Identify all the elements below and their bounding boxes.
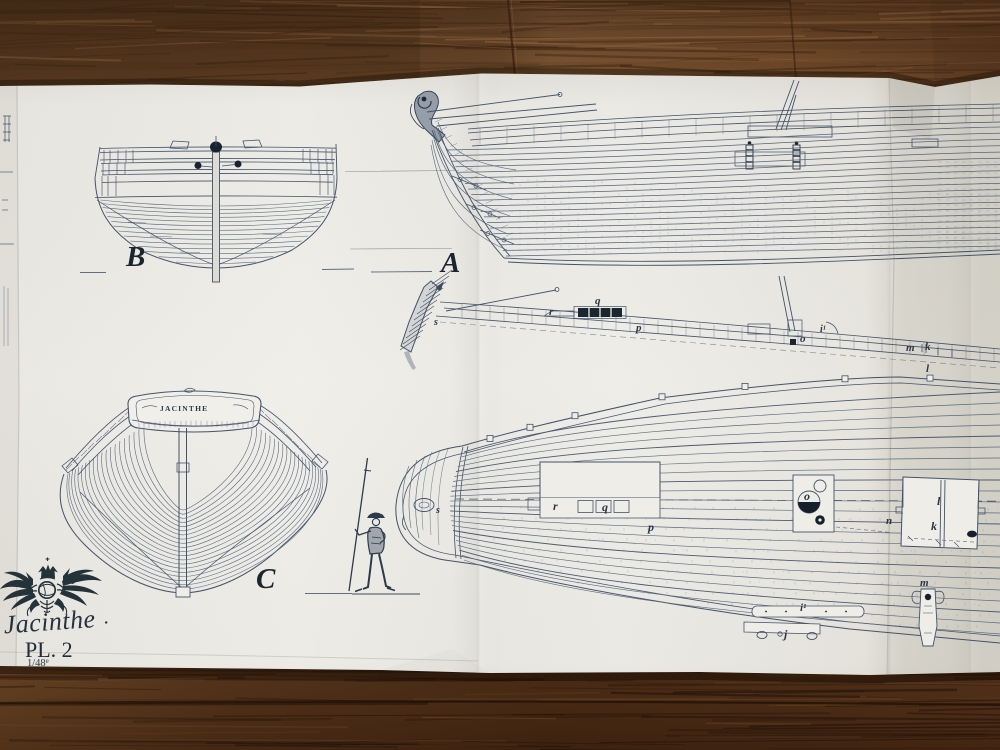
svg-text:r: r xyxy=(553,499,558,513)
svg-text:r: r xyxy=(549,306,554,318)
svg-text:s: s xyxy=(435,505,440,516)
svg-text:m: m xyxy=(906,342,915,354)
svg-text:i¹: i¹ xyxy=(820,324,826,335)
svg-text:C: C xyxy=(256,563,276,595)
svg-text:B: B xyxy=(125,241,145,273)
svg-text:k: k xyxy=(925,341,931,353)
svg-text:s: s xyxy=(433,317,438,328)
svg-text:A: A xyxy=(439,247,460,279)
svg-text:k: k xyxy=(931,519,937,533)
svg-text:o: o xyxy=(800,333,806,345)
svg-text:q: q xyxy=(602,500,608,514)
svg-text:o: o xyxy=(804,489,810,503)
svg-text:JACINTHE: JACINTHE xyxy=(160,404,208,413)
svg-text:i¹: i¹ xyxy=(800,602,806,614)
svg-text:q: q xyxy=(595,295,601,307)
svg-text:n: n xyxy=(886,515,892,527)
svg-text:m: m xyxy=(920,577,929,589)
svg-text:p: p xyxy=(647,520,654,534)
svg-text:p: p xyxy=(635,322,642,334)
